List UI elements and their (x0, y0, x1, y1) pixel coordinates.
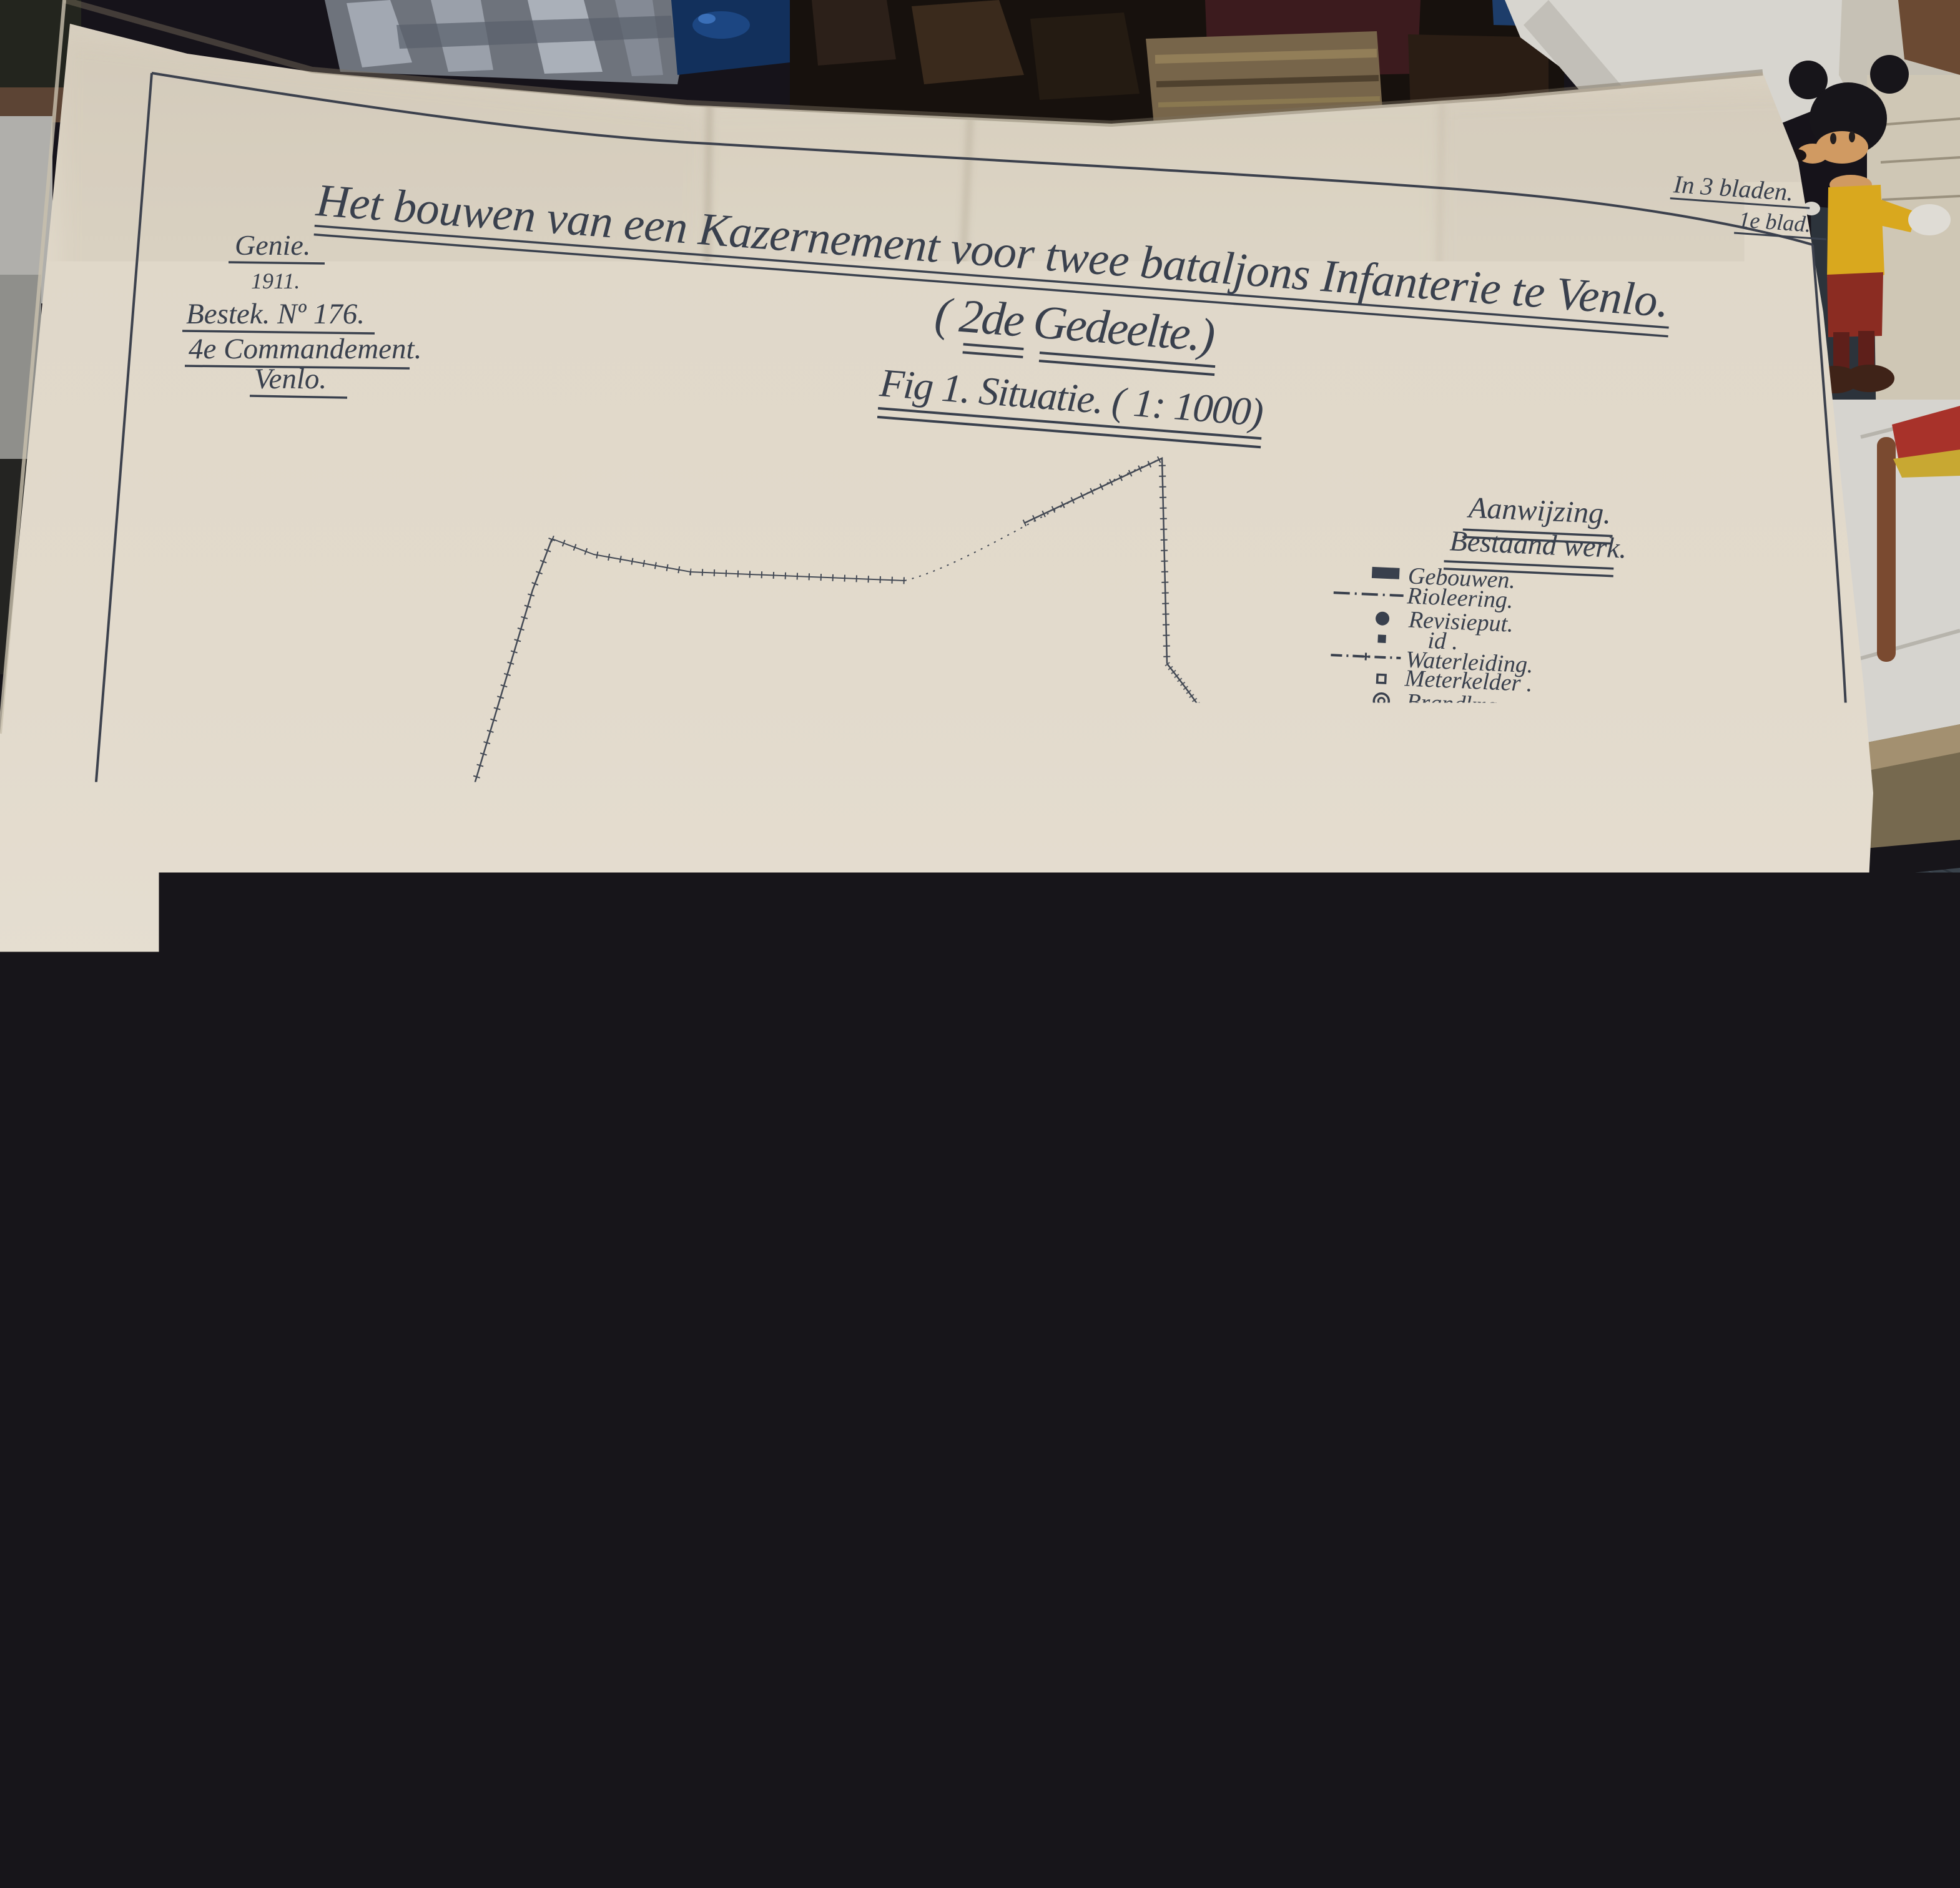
svg-text:1e blad.: 1e blad. (1738, 207, 1811, 237)
svg-text:Bestek. Nº 176.: Bestek. Nº 176. (186, 298, 365, 330)
svg-text:QMS: QMS (873, 903, 1057, 996)
svg-text:Rioleering.: Rioleering. (1404, 942, 1512, 972)
svg-text:Aanwijzing.: Aanwijzing. (1466, 491, 1612, 530)
svg-text:1911.: 1911. (251, 268, 300, 293)
svg-text:Revisieput.: Revisieput. (1407, 607, 1514, 637)
svg-text:Genie.: Genie. (235, 229, 310, 261)
svg-text:Heg.: Heg. (1417, 819, 1464, 847)
svg-text:4e Commandement.: 4e Commandement. (189, 333, 421, 365)
svg-text:Venlo.: Venlo. (254, 363, 327, 395)
svg-text:+ + + + +: + + + + + (1326, 743, 1408, 770)
